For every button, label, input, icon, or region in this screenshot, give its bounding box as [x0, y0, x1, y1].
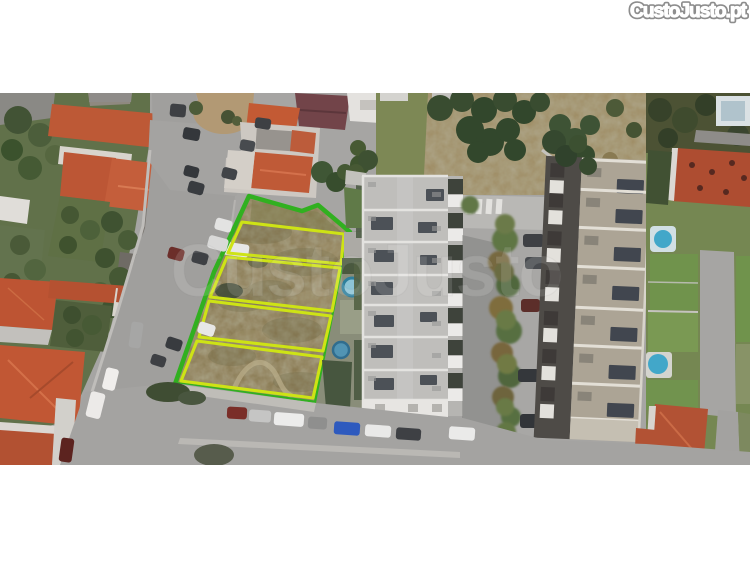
- svg-text:CustoJusto: CustoJusto: [171, 229, 566, 312]
- svg-text:CustoJusto.pt: CustoJusto.pt: [630, 1, 748, 22]
